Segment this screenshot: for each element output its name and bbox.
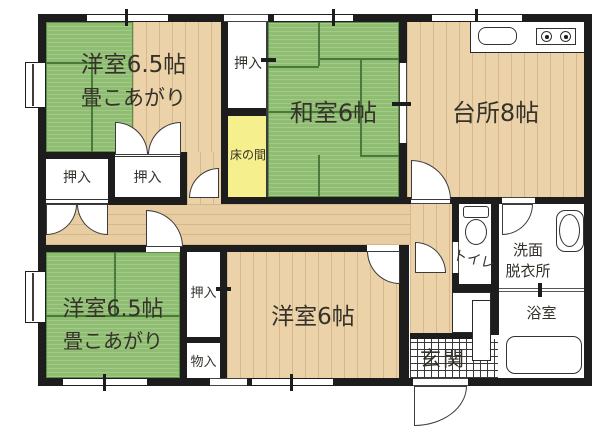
tatami-joint-line (318, 58, 399, 60)
room-label-washroom-line2: 脱衣所 (495, 262, 561, 279)
bay-window (25, 62, 46, 108)
wall-hall-bottom (183, 245, 367, 252)
tatami-joint-line (360, 155, 399, 157)
entrance-door-opening (413, 378, 468, 386)
wall-top (353, 14, 432, 22)
wall-bottom-room-right (399, 245, 409, 378)
wall-closet-mid-bottom (115, 197, 180, 205)
wall-genkan-top (410, 333, 473, 339)
label-closet-mid: 押入 (115, 169, 180, 185)
wall-hall-bottom (46, 245, 146, 252)
stove-burner-dot (545, 35, 549, 39)
wall-gap (210, 378, 247, 386)
tatami-joint-line (268, 66, 319, 68)
room-label-western-bottom-left: 洋室6.5帖 (46, 294, 180, 320)
wall-closet-row-top (46, 152, 108, 159)
toilet-tank-icon (463, 206, 489, 218)
label-storage: 物入 (186, 352, 221, 368)
bathtub-icon (506, 336, 582, 374)
wall-top (168, 14, 224, 22)
label-closet-top: 押入 (228, 55, 268, 71)
wall-closet-divider (108, 152, 115, 205)
bay-window-line (32, 64, 34, 106)
wall-hall-top (535, 197, 584, 204)
room-label-bath: 浴室 (499, 303, 584, 321)
room-sublabel-western-top: 畳こあがり (46, 84, 221, 110)
wall-top (522, 14, 592, 22)
room-label-genkan: 玄関 (412, 345, 474, 371)
tatami-joint-line (318, 155, 320, 197)
window-tick (290, 374, 293, 391)
label-tokonoma: 床の間 (227, 147, 269, 161)
divider-door-tick (538, 283, 542, 297)
bay-window (25, 271, 46, 323)
door-arc-entrance (414, 386, 467, 426)
room-label-western-bottom: 洋室6帖 (227, 300, 399, 328)
washroom-door-opening (502, 197, 535, 204)
window-tick (103, 374, 106, 391)
kitchen-sink-icon (478, 27, 517, 45)
wall-hall-top (221, 197, 411, 204)
bay-window-line (32, 273, 34, 321)
label-closet-left: 押入 (46, 169, 108, 185)
floor-plan: 洋室6.5帖 畳こあがり 和室6帖 台所8帖 洋室6.5帖 畳こあがり 洋室6帖… (0, 0, 600, 440)
window (274, 14, 353, 22)
wall-right (584, 14, 592, 386)
wall-tokonoma-left (221, 22, 228, 204)
shoe-cabinet (472, 300, 491, 361)
wall-bottom (468, 378, 592, 386)
label-closet-bottom: 押入 (186, 283, 221, 299)
wall-closet-tokonoma-divider (228, 108, 268, 116)
room-label-western-top: 洋室6.5帖 (46, 48, 221, 76)
toilet-bowl-icon (465, 219, 487, 245)
wall-washitsu-kitchen (399, 143, 407, 197)
wall-bath-left (491, 292, 499, 335)
wall-bottom (333, 378, 413, 386)
wall-toilet-left (452, 204, 459, 242)
window-tick (125, 9, 128, 26)
wall-bottom (147, 378, 210, 386)
room-label-washroom-line1: 洗面 (499, 241, 557, 258)
wall-closet-mid-right (180, 152, 187, 205)
window-tick (332, 9, 335, 26)
washbasin-oval-icon (559, 214, 580, 247)
wall-washitsu-kitchen (399, 14, 407, 63)
closet-top-wall-gap (224, 14, 268, 22)
wall-strip-right (220, 245, 227, 378)
room-sublabel-western-bottom-left: 畳こあがり (46, 327, 180, 351)
stove-burner-dot (564, 35, 568, 39)
room-label-kitchen: 台所8帖 (407, 96, 584, 124)
wall-hall-top (450, 197, 502, 204)
wall-strip-divider (180, 337, 227, 343)
room-label-washitsu: 和室6帖 (268, 96, 399, 124)
